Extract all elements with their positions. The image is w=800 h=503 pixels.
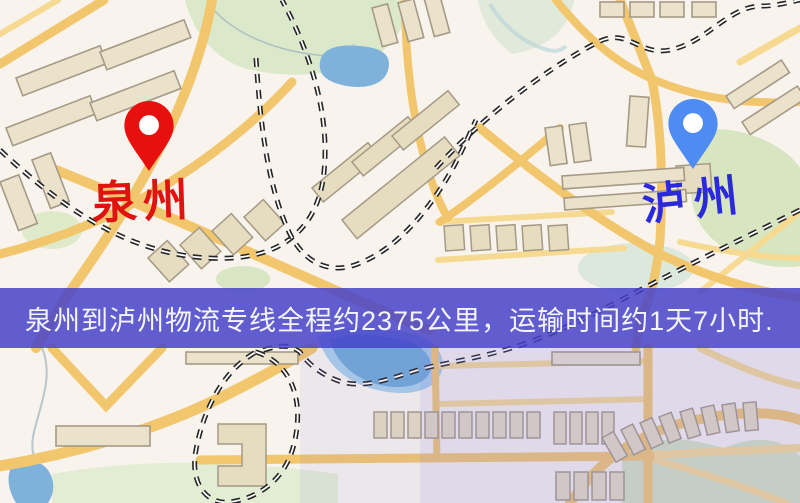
destination-pin-icon [667, 98, 719, 170]
tint-overlay [420, 348, 800, 503]
origin-city-label: 泉州 [91, 177, 195, 226]
route-info-banner: 泉州到泸州物流专线全程约2375公里，运输时间约1天7小时. [0, 288, 800, 348]
map-background [0, 0, 800, 503]
tint-overlay-fade [300, 348, 420, 503]
destination-city-label: 泸州 [640, 174, 748, 229]
route-info-text: 泉州到泸州物流专线全程约2375公里，运输时间约1天7小时. [0, 299, 774, 338]
logistics-route-map: 泉州 泸州 泉州到泸州物流专线全程约2375公里，运输时间约1天7小时. [0, 0, 800, 503]
origin-pin-icon [123, 100, 175, 172]
